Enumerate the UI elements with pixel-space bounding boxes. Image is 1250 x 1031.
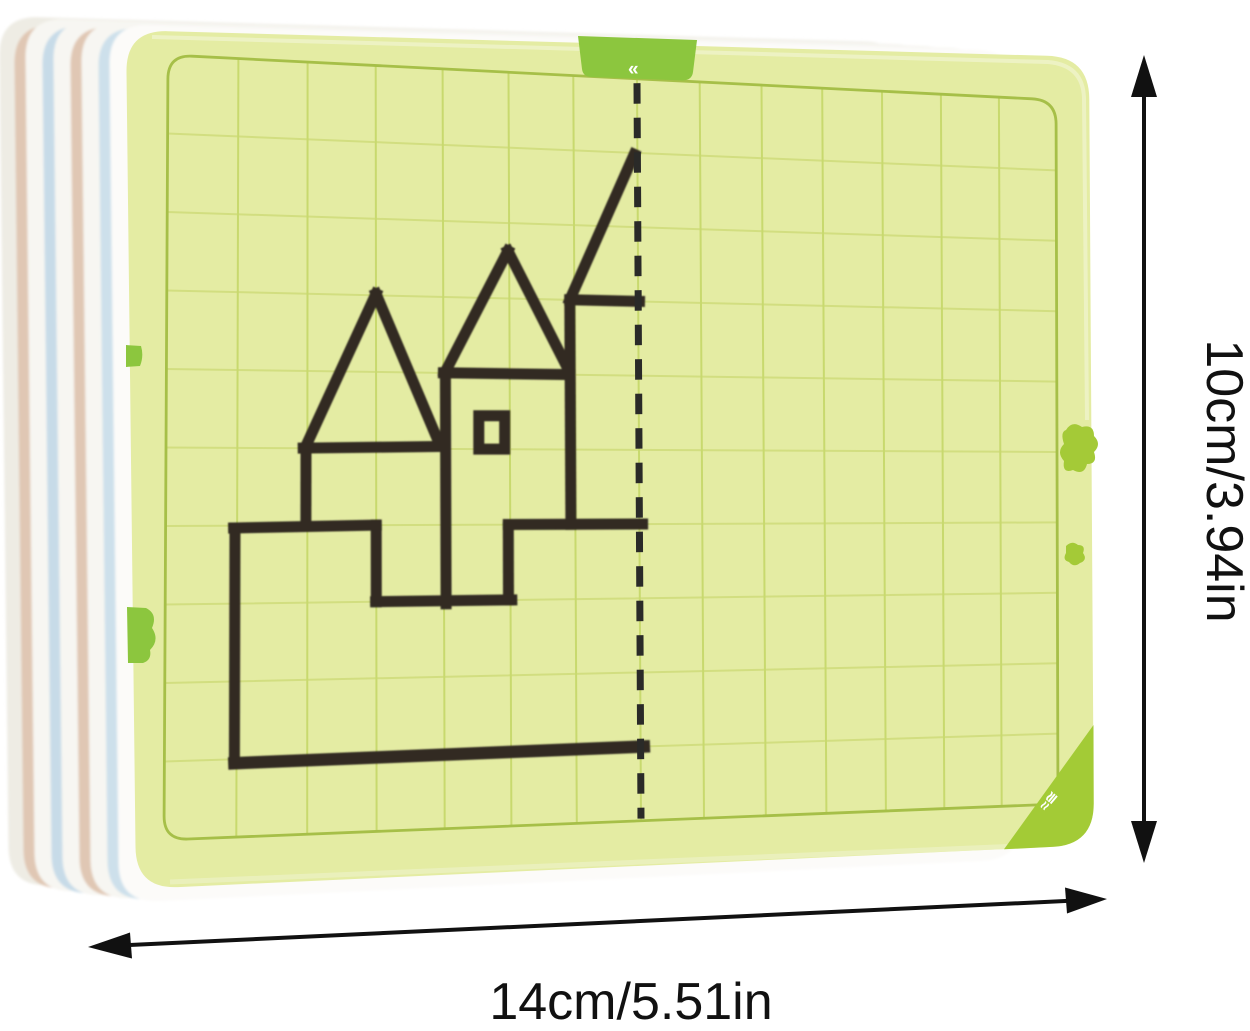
- svg-text:10cm/3.94in: 10cm/3.94in: [1195, 339, 1250, 622]
- svg-text:«: «: [628, 59, 639, 80]
- svg-text:14cm/5.51in: 14cm/5.51in: [489, 973, 772, 1031]
